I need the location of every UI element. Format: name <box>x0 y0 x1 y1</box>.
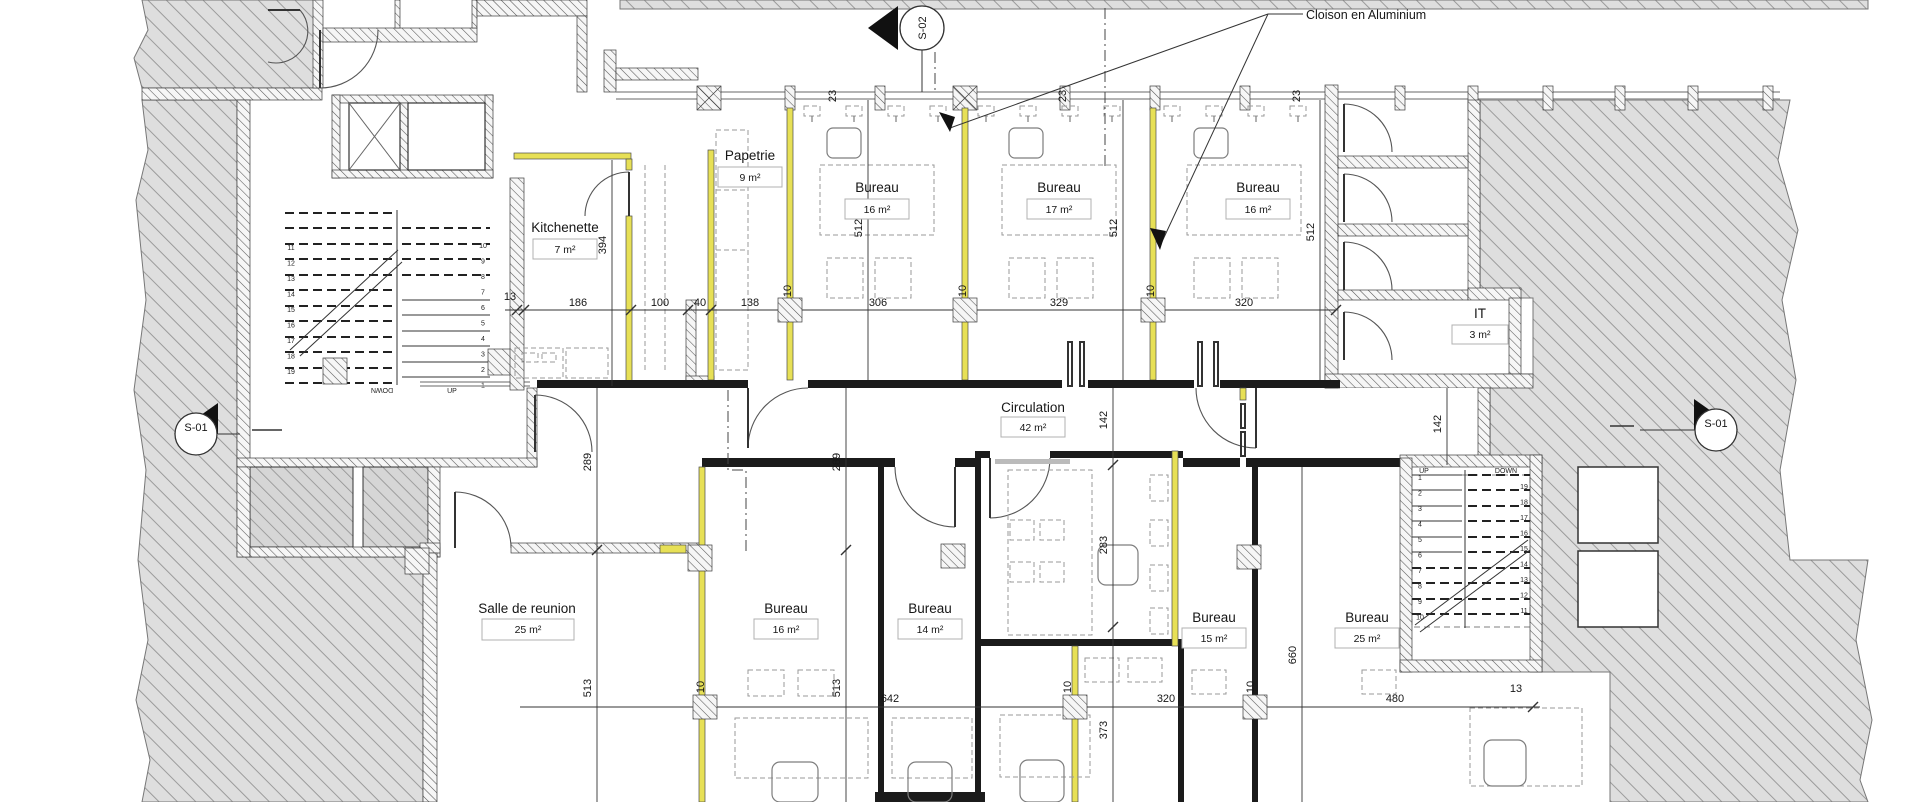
yellow-partition <box>787 108 793 380</box>
dim-512-c: 512 <box>1305 223 1317 241</box>
stair-number: 7 <box>1418 568 1422 575</box>
yellow-partition <box>962 108 968 380</box>
stair-number: 3 <box>481 352 485 359</box>
svg-text:Bureau: Bureau <box>908 601 952 616</box>
stairs-left: 111213141516171819 10987654321 DOWN UP <box>285 210 530 395</box>
svg-text:Salle de reunion: Salle de reunion <box>478 601 576 616</box>
stair-number: 16 <box>287 323 295 330</box>
stair-number: 13 <box>287 276 295 283</box>
stair-number: 12 <box>1520 593 1528 600</box>
svg-text:16 m²: 16 m² <box>864 204 891 216</box>
room-bureau-t1: Bureau 16 m² <box>845 180 909 219</box>
dim-329: 329 <box>1050 297 1068 309</box>
stair-number: 1 <box>1418 475 1422 482</box>
dim-10: 10 <box>782 285 794 297</box>
svg-text:15 m²: 15 m² <box>1201 633 1228 645</box>
room-it: IT 3 m² <box>1452 306 1508 344</box>
stair-number: 5 <box>481 321 485 328</box>
svg-text:IT: IT <box>1474 306 1486 321</box>
stair-up-label: UP <box>447 388 457 395</box>
stair-down-label: DOWN <box>371 386 393 393</box>
dim-138: 138 <box>741 297 759 309</box>
dim-512-b: 512 <box>1108 219 1120 237</box>
dim-320-bottom: 320 <box>1157 693 1175 705</box>
dim-13-stairs: 13 <box>1510 683 1522 695</box>
stair-number: 11 <box>287 245 294 252</box>
dim-40: 40 <box>694 297 706 309</box>
yellow-partition <box>1072 646 1078 802</box>
room-bureau-t2: Bureau 17 m² <box>1027 180 1091 219</box>
stair-number: 8 <box>1418 584 1422 591</box>
dim-23-c: 23 <box>1291 90 1303 102</box>
svg-text:Kitchenette: Kitchenette <box>531 220 599 235</box>
dim-373: 373 <box>1098 721 1110 739</box>
stair-number: 2 <box>1418 491 1422 498</box>
room-salle: Salle de reunion 25 m² <box>478 601 576 640</box>
yellow-partition <box>514 153 631 159</box>
yellow-partition <box>1172 451 1178 646</box>
dim-10: 10 <box>695 681 707 693</box>
stair-number: 18 <box>1520 500 1528 507</box>
dim-142-b: 142 <box>1432 415 1444 433</box>
second-shaft <box>408 103 485 170</box>
svg-text:Bureau: Bureau <box>1236 180 1280 195</box>
yellow-partitions-top <box>708 108 1156 380</box>
svg-text:16 m²: 16 m² <box>773 624 800 636</box>
svg-text:Bureau: Bureau <box>1192 610 1236 625</box>
hatch-right-region <box>1480 100 1872 802</box>
svg-text:25 m²: 25 m² <box>515 624 542 636</box>
side-room-2 <box>1578 551 1658 627</box>
stair-down-label: DOWN <box>1495 468 1517 475</box>
stair-number: 10 <box>1416 615 1424 622</box>
room-circulation: Circulation 42 m² <box>1001 400 1065 437</box>
stair-number: 9 <box>481 259 485 266</box>
dim-10: 10 <box>1245 681 1257 693</box>
stair-numbers-left-down: 111213141516171819 <box>287 245 295 376</box>
yellow-partition <box>708 150 714 380</box>
stair-numbers-right-down: 191817161514131211 <box>1520 484 1528 615</box>
svg-text:16 m²: 16 m² <box>1245 204 1272 216</box>
svg-text:14 m²: 14 m² <box>917 624 944 636</box>
room-bureau-b3: Bureau 15 m² <box>1182 610 1246 648</box>
stair-number: 6 <box>1418 553 1422 560</box>
dim-642: 642 <box>881 693 899 705</box>
dim-10: 10 <box>1145 285 1157 297</box>
dim-480: 480 <box>1386 693 1404 705</box>
room-kitchenette: Kitchenette 7 m² <box>531 220 599 259</box>
yellow-partition <box>660 545 686 553</box>
section-label-s02: S-02 <box>917 16 929 39</box>
room-bureau-t3: Bureau 16 m² <box>1226 180 1290 219</box>
stair-number: 4 <box>1418 522 1422 529</box>
hatch-left-column <box>134 100 423 802</box>
stair-number: 15 <box>1520 546 1528 553</box>
dim-10: 10 <box>957 285 969 297</box>
callout-text: Cloison en Aluminium <box>1306 8 1426 22</box>
yellow-partition <box>1150 108 1156 380</box>
corridor-doors <box>535 342 1452 460</box>
section-label-s01-right: S-01 <box>1704 418 1727 430</box>
svg-text:Papetrie: Papetrie <box>725 148 775 163</box>
dim-23-a: 23 <box>827 90 839 102</box>
dim-23-b: 23 <box>1057 90 1069 102</box>
floor-plan: 111213141516171819 10987654321 DOWN UP <box>0 0 1920 802</box>
svg-text:17 m²: 17 m² <box>1046 204 1073 216</box>
svg-text:3 m²: 3 m² <box>1470 329 1492 341</box>
svg-text:Circulation: Circulation <box>1001 400 1065 415</box>
dim-513-b: 513 <box>831 679 843 697</box>
dim-660: 660 <box>1287 646 1299 664</box>
stair-number: 13 <box>1520 577 1528 584</box>
stair-number: 9 <box>1418 599 1422 606</box>
stair-number: 6 <box>481 305 485 312</box>
stair-number: 19 <box>1520 484 1528 491</box>
svg-text:9 m²: 9 m² <box>740 172 762 184</box>
stair-number: 7 <box>481 290 485 297</box>
dim-142-a: 142 <box>1098 411 1110 429</box>
stair-number: 18 <box>287 354 295 361</box>
floor-plan-drawing: 111213141516171819 10987654321 DOWN UP <box>0 0 1920 802</box>
corridor-end-room <box>1340 388 1478 458</box>
room-bureau-b2: Bureau 14 m² <box>898 601 962 639</box>
stair-number: 12 <box>287 261 295 268</box>
dim-394: 394 <box>597 236 609 254</box>
side-room-1 <box>1578 467 1658 543</box>
svg-text:Bureau: Bureau <box>855 180 899 195</box>
svg-text:Bureau: Bureau <box>764 601 808 616</box>
dim-10: 10 <box>1062 681 1074 693</box>
dim-13-top: 13 <box>504 291 516 303</box>
svg-text:42 m²: 42 m² <box>1020 422 1047 434</box>
section-label-s01-left: S-01 <box>184 422 207 434</box>
dim-320-top: 320 <box>1235 297 1253 309</box>
stair-numbers-right-up: 12345678910 <box>1416 475 1424 622</box>
room-papetrie: Papetrie 9 m² <box>718 148 782 187</box>
hatch-top-strip <box>620 0 1868 9</box>
meeting-room-furniture <box>995 459 1168 635</box>
bottom-rooms-furniture <box>735 658 1582 802</box>
stair-number: 16 <box>1520 531 1528 538</box>
dim-513-a: 513 <box>582 679 594 697</box>
svg-text:7 m²: 7 m² <box>555 244 577 256</box>
room-bureau-b1: Bureau 16 m² <box>754 601 818 639</box>
stair-number: 14 <box>287 292 295 299</box>
stair-number: 17 <box>287 338 295 345</box>
yellow-partition <box>1240 388 1246 400</box>
hatch-top-left-block <box>134 0 322 88</box>
room-bureau-b4: Bureau 25 m² <box>1335 610 1399 648</box>
yellow-partition <box>626 216 632 386</box>
stair-number: 17 <box>1520 515 1528 522</box>
stair-numbers-left-up: 10987654321 <box>479 243 487 390</box>
stair-number: 2 <box>481 367 485 374</box>
dim-186: 186 <box>569 297 587 309</box>
yellow-partition <box>699 467 705 802</box>
stair-number: 3 <box>1418 506 1422 513</box>
stair-number: 15 <box>287 307 295 314</box>
dim-289-b: 289 <box>831 453 843 471</box>
stair-number: 11 <box>1520 608 1527 615</box>
dim-306: 306 <box>869 297 887 309</box>
svg-text:Bureau: Bureau <box>1345 610 1389 625</box>
dim-283: 283 <box>1098 536 1110 554</box>
stair-number: 19 <box>287 369 295 376</box>
section-marker-s02: S-02 <box>868 6 944 92</box>
stair-up-label: UP <box>1419 468 1429 475</box>
svg-text:Bureau: Bureau <box>1037 180 1081 195</box>
yellow-partition <box>626 159 632 170</box>
stairs-right: 12345678910 191817161514131211 UP DOWN <box>1412 468 1530 632</box>
stair-number: 4 <box>481 336 485 343</box>
svg-text:25 m²: 25 m² <box>1354 633 1381 645</box>
elevator-core <box>332 95 493 178</box>
stair-number: 10 <box>479 243 487 250</box>
stair-number: 14 <box>1520 562 1528 569</box>
dim-100: 100 <box>651 297 669 309</box>
dim-512-a: 512 <box>853 219 865 237</box>
dim-289-a: 289 <box>582 453 594 471</box>
stair-number: 8 <box>481 274 485 281</box>
stair-number: 5 <box>1418 537 1422 544</box>
